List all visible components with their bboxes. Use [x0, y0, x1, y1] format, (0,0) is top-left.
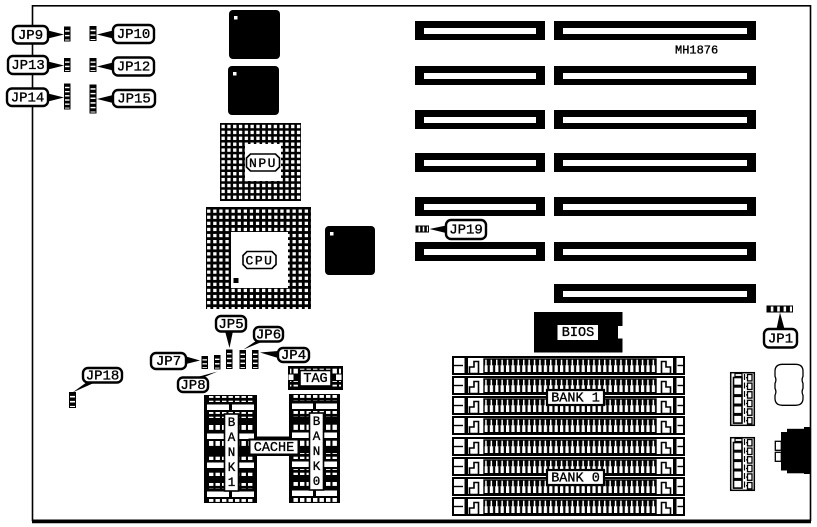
svg-text:CACHE: CACHE	[254, 441, 295, 456]
svg-text:BANK 1: BANK 1	[551, 392, 600, 407]
svg-text:NPU: NPU	[249, 156, 277, 171]
svg-text:JP14: JP14	[11, 90, 45, 106]
svg-text:K: K	[313, 460, 321, 474]
svg-text:JP9: JP9	[18, 28, 43, 44]
svg-text:JP8: JP8	[180, 378, 205, 394]
svg-text:A: A	[228, 431, 236, 445]
svg-text:JP12: JP12	[117, 60, 151, 76]
svg-text:N: N	[313, 445, 321, 459]
svg-text:B: B	[228, 416, 236, 430]
svg-text:JP10: JP10	[117, 27, 151, 43]
svg-text:TAG: TAG	[303, 372, 327, 387]
svg-text:JP6: JP6	[256, 327, 281, 343]
svg-text:K: K	[228, 461, 236, 475]
svg-text:JP19: JP19	[449, 223, 483, 239]
svg-text:1: 1	[228, 476, 236, 490]
svg-text:B: B	[313, 415, 321, 429]
svg-text:JP7: JP7	[156, 354, 181, 370]
svg-text:JP15: JP15	[117, 92, 151, 108]
svg-text:A: A	[313, 430, 321, 444]
svg-text:BANK 0: BANK 0	[551, 472, 600, 487]
svg-text:JP13: JP13	[11, 58, 45, 74]
svg-text:BIOS: BIOS	[562, 326, 594, 341]
svg-text:JP18: JP18	[86, 368, 120, 384]
svg-text:MH1876: MH1876	[675, 44, 718, 58]
svg-text:JP1: JP1	[768, 331, 793, 347]
svg-text:JP5: JP5	[218, 317, 243, 333]
svg-text:JP4: JP4	[281, 348, 306, 364]
svg-text:N: N	[228, 446, 236, 460]
svg-text:CPU: CPU	[246, 254, 274, 269]
svg-text:0: 0	[313, 475, 321, 489]
